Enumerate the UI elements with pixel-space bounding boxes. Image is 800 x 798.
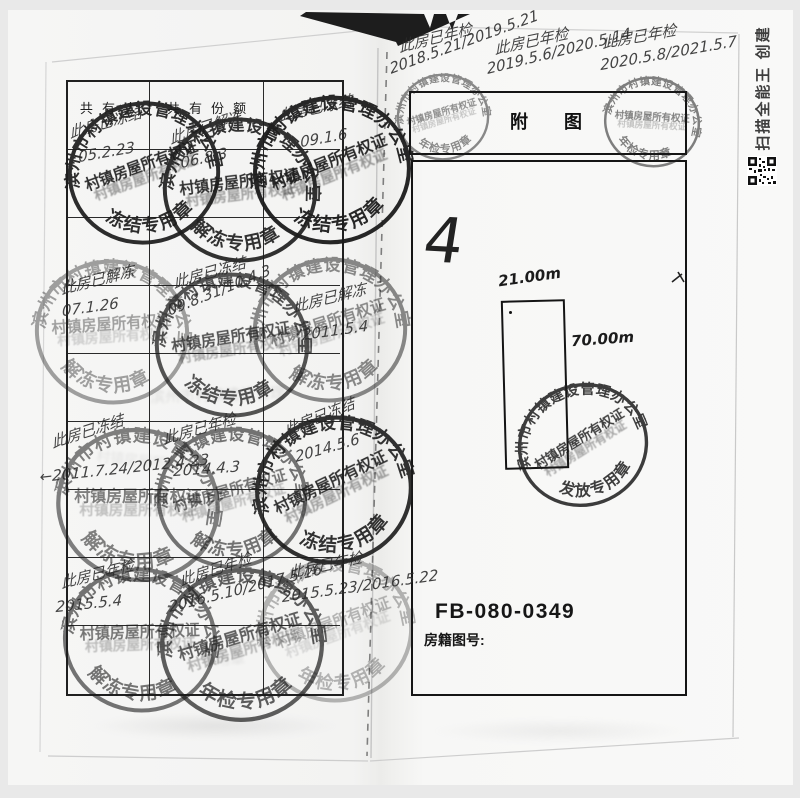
qr-code-icon [747,156,777,186]
figure-title: 附 图 [409,91,683,151]
plot-outline [501,299,569,470]
table-header-col2: 共有份额 [150,82,264,150]
document-code: FB-080-0349 [435,600,575,624]
registry-number-label: 房籍图号: [424,630,485,650]
table-header-col3 [264,82,340,150]
scan-smudge [90,712,340,740]
plot-dot [509,311,512,314]
scan-smudge [430,718,690,744]
table-header-col1: 共有人 [68,82,150,150]
scanned-document: 共有人 共有份额 滨州市村镇建设管理 村镇房屋所有权证 专用章 附 图 4 21… [0,0,800,798]
ink-ghost: 专用章 [199,647,245,670]
scanner-watermark: 扫描全能王 创建 [752,23,772,153]
